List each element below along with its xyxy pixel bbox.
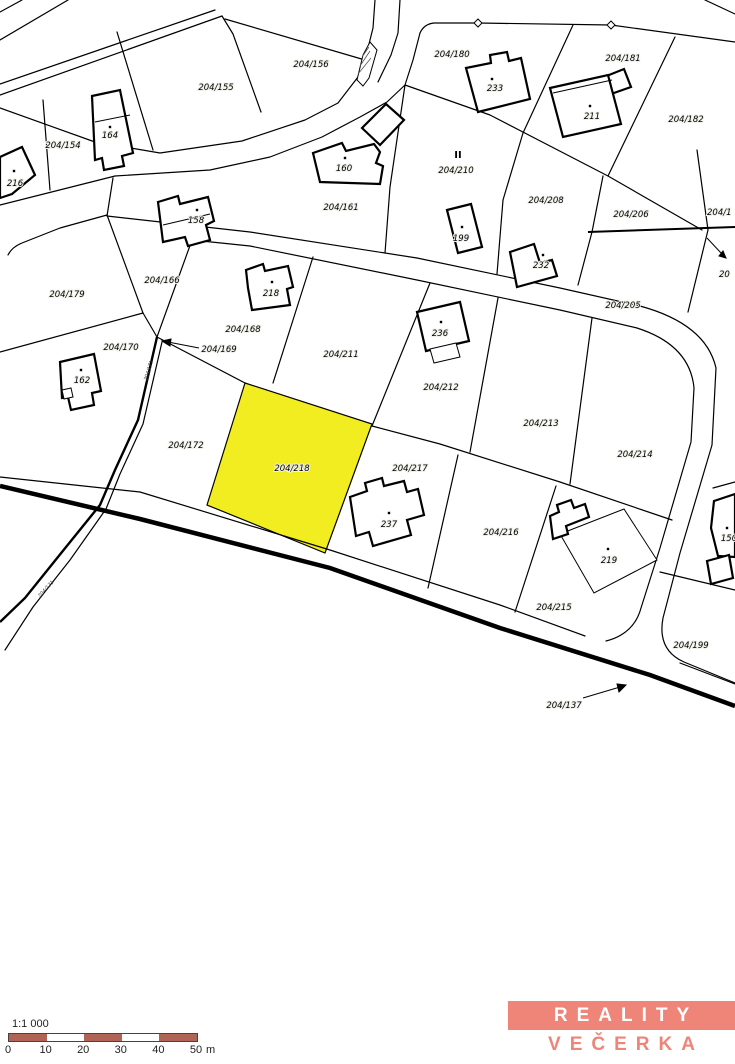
parcel-label: 204/215 bbox=[536, 603, 571, 613]
rotated-parcel-labels: 204/171204/171 bbox=[37, 360, 155, 599]
parcel-label: 204/166 bbox=[144, 276, 180, 286]
building-label: 233 bbox=[487, 84, 503, 94]
building-label: 199 bbox=[453, 234, 469, 244]
agency-logo: REALITY VEČERKA bbox=[508, 1001, 735, 1059]
scale-segment bbox=[47, 1034, 85, 1041]
building-dot bbox=[542, 254, 544, 256]
parcel-label: 204/213 bbox=[523, 419, 558, 429]
rotated-parcel-label: 204/171 bbox=[37, 580, 55, 599]
parcel-label: 204/211 bbox=[323, 350, 358, 360]
scale-bar-ticks: 01020304050m bbox=[8, 1044, 218, 1058]
landuse-symbols: II bbox=[454, 150, 461, 161]
building-label: 232 bbox=[533, 261, 549, 271]
scale-tick: 40 bbox=[152, 1044, 164, 1056]
building-dot bbox=[726, 527, 728, 529]
parcel-label: 204/181 bbox=[605, 54, 640, 64]
building-dot bbox=[80, 369, 82, 371]
building-dot bbox=[607, 548, 609, 550]
building-label: 218 bbox=[263, 289, 280, 299]
logo-line-vecerka: VEČERKA bbox=[508, 1030, 735, 1059]
scale-ratio: 1:1 000 bbox=[12, 1018, 218, 1030]
parcel-label: 204/155 bbox=[198, 83, 233, 93]
building-label: 160 bbox=[336, 164, 352, 174]
cadastral-map-page: 204/156204/155204/154204/180204/181204/1… bbox=[0, 0, 735, 1064]
parcel-label: 204/161 bbox=[323, 203, 358, 213]
scale-tick: 50 bbox=[190, 1044, 202, 1056]
scale-unit: m bbox=[206, 1044, 215, 1056]
cadastral-map: 204/156204/155204/154204/180204/181204/1… bbox=[0, 0, 735, 1064]
parcel-label: 204/210 bbox=[438, 166, 473, 176]
scale-bar: 1:1 000 01020304050m bbox=[8, 1018, 218, 1058]
building-label: 216 bbox=[7, 179, 24, 189]
building-dot bbox=[13, 170, 15, 172]
building-label: 236 bbox=[432, 329, 449, 339]
scale-segment bbox=[84, 1034, 122, 1041]
building-dot bbox=[196, 209, 198, 211]
building-label: 211 bbox=[584, 112, 600, 122]
building-dot bbox=[491, 78, 493, 80]
building-dot bbox=[109, 126, 111, 128]
building-dot bbox=[440, 321, 442, 323]
parcel-label: 204/179 bbox=[49, 290, 84, 300]
parcel-label: 204/169 bbox=[201, 345, 236, 355]
parcel-label: 204/182 bbox=[668, 115, 703, 125]
building-dot bbox=[271, 281, 273, 283]
parcel-label: 204/208 bbox=[528, 196, 564, 206]
landuse-symbol: II bbox=[454, 150, 461, 161]
building-label: 150 bbox=[721, 534, 735, 544]
building-dot bbox=[388, 512, 390, 514]
scale-tick: 20 bbox=[77, 1044, 89, 1056]
parcel-label: 204/154 bbox=[45, 141, 80, 151]
logo-line-reality: REALITY bbox=[508, 1001, 735, 1030]
building-dot bbox=[589, 105, 591, 107]
building-label: 219 bbox=[601, 556, 617, 566]
parcel-label: 204/206 bbox=[613, 210, 649, 220]
scale-tick: 10 bbox=[39, 1044, 51, 1056]
scale-tick: 0 bbox=[5, 1044, 11, 1056]
parcel-label: 204/212 bbox=[423, 383, 458, 393]
parcel-label: 204/156 bbox=[293, 60, 329, 70]
scale-tick: 30 bbox=[115, 1044, 127, 1056]
parcel-label: 204/170 bbox=[103, 343, 138, 353]
parcel-label: 204/168 bbox=[225, 325, 261, 335]
building-dot bbox=[344, 157, 346, 159]
edge-clipped-labels: 204/120 bbox=[707, 208, 732, 280]
building-label: 162 bbox=[74, 376, 90, 386]
parcel-label: 204/214 bbox=[617, 450, 652, 460]
parcel-label: 204/218 bbox=[274, 464, 310, 474]
scale-segment bbox=[9, 1034, 47, 1041]
parcel-label: 204/205 bbox=[605, 301, 640, 311]
building-label: 164 bbox=[102, 131, 118, 141]
parcel-label: 204/216 bbox=[483, 528, 519, 538]
parcel-label: 204/180 bbox=[434, 50, 469, 60]
scale-segment bbox=[159, 1034, 197, 1041]
edge-parcel-label: 204/1 bbox=[707, 208, 732, 218]
parcel-label: 204/217 bbox=[392, 464, 428, 474]
parcel-label: 204/137 bbox=[546, 701, 582, 711]
scale-segment bbox=[122, 1034, 160, 1041]
building-dot bbox=[461, 226, 463, 228]
hatched-island bbox=[357, 42, 377, 86]
parcel-label: 204/172 bbox=[168, 441, 203, 451]
edge-parcel-label: 20 bbox=[719, 270, 730, 280]
scale-bar-segments bbox=[8, 1033, 198, 1042]
parcel-label: 204/199 bbox=[673, 641, 708, 651]
building-label: 158 bbox=[188, 216, 205, 226]
building-label: 237 bbox=[381, 520, 398, 530]
